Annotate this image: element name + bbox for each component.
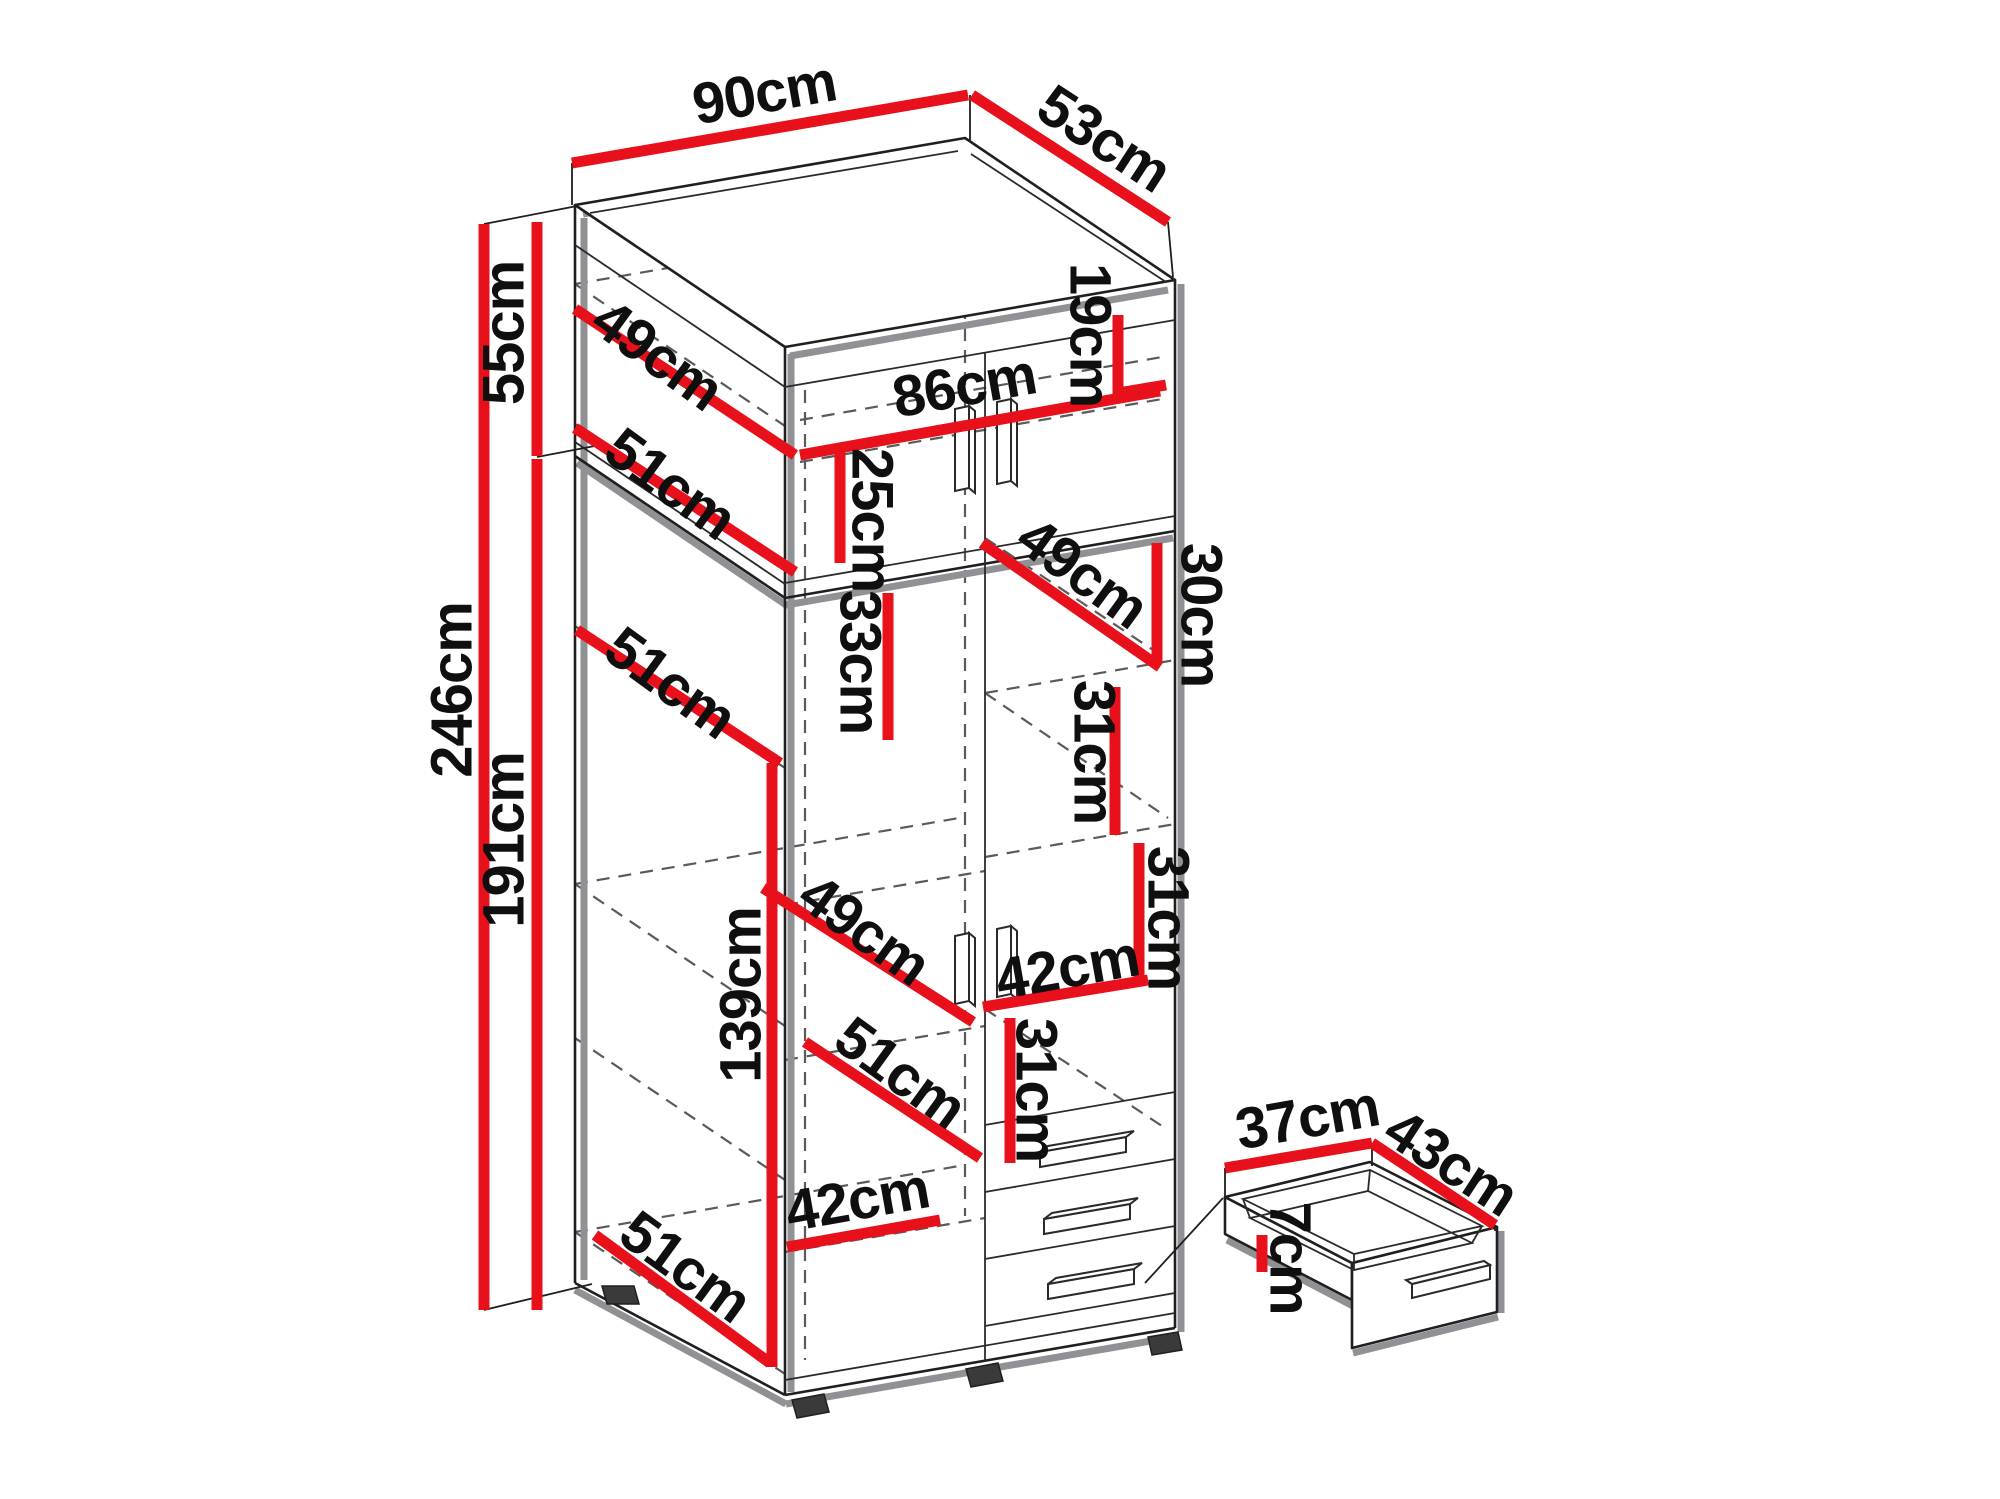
dimension-label-right-h-30: 30cm — [1169, 543, 1234, 687]
dimension-label-mid-shelf-depth: 51cm — [593, 614, 748, 751]
dimension-label-top-right-h: 19cm — [1058, 263, 1123, 407]
diagram-page: 90cm53cm55cm246cm191cm49cm51cm86cm25cm19… — [0, 0, 2000, 1499]
dimension-label-right-h-31c: 31cm — [1004, 1018, 1069, 1162]
lower-door-left-handle — [955, 933, 975, 1006]
dimension-label-top-interior-h: 25cm — [840, 448, 905, 592]
dimension-label-right-h-31a: 31cm — [1062, 680, 1127, 824]
dimension-label-upper-height: 55cm — [471, 261, 536, 405]
dimension-label-right-shelf-depth: 49cm — [1005, 504, 1160, 641]
dimension-label-total-height: 246cm — [419, 602, 484, 778]
dimension-label-mid-h-33: 33cm — [828, 590, 893, 734]
dimension-label-lower-height: 191cm — [471, 752, 536, 928]
dimension-label-left-shelf-depth-51: 51cm — [823, 1004, 978, 1141]
dimension-label-drawer-height: 7cm — [1258, 1201, 1323, 1314]
dimension-label-right-h-31b: 31cm — [1136, 846, 1201, 990]
dimension-label-top-shelf-depth-2: 51cm — [593, 415, 748, 552]
dimension-label-left-shelf-w: 42cm — [781, 1155, 934, 1244]
dimension-label-left-interior-h: 139cm — [708, 907, 773, 1083]
wardrobe-dimension-diagram: 90cm53cm55cm246cm191cm49cm51cm86cm25cm19… — [0, 0, 2000, 1499]
dimension-label-top-shelf-depth: 49cm — [580, 286, 735, 423]
dimension-label-bottom-depth: 51cm — [608, 1198, 763, 1335]
